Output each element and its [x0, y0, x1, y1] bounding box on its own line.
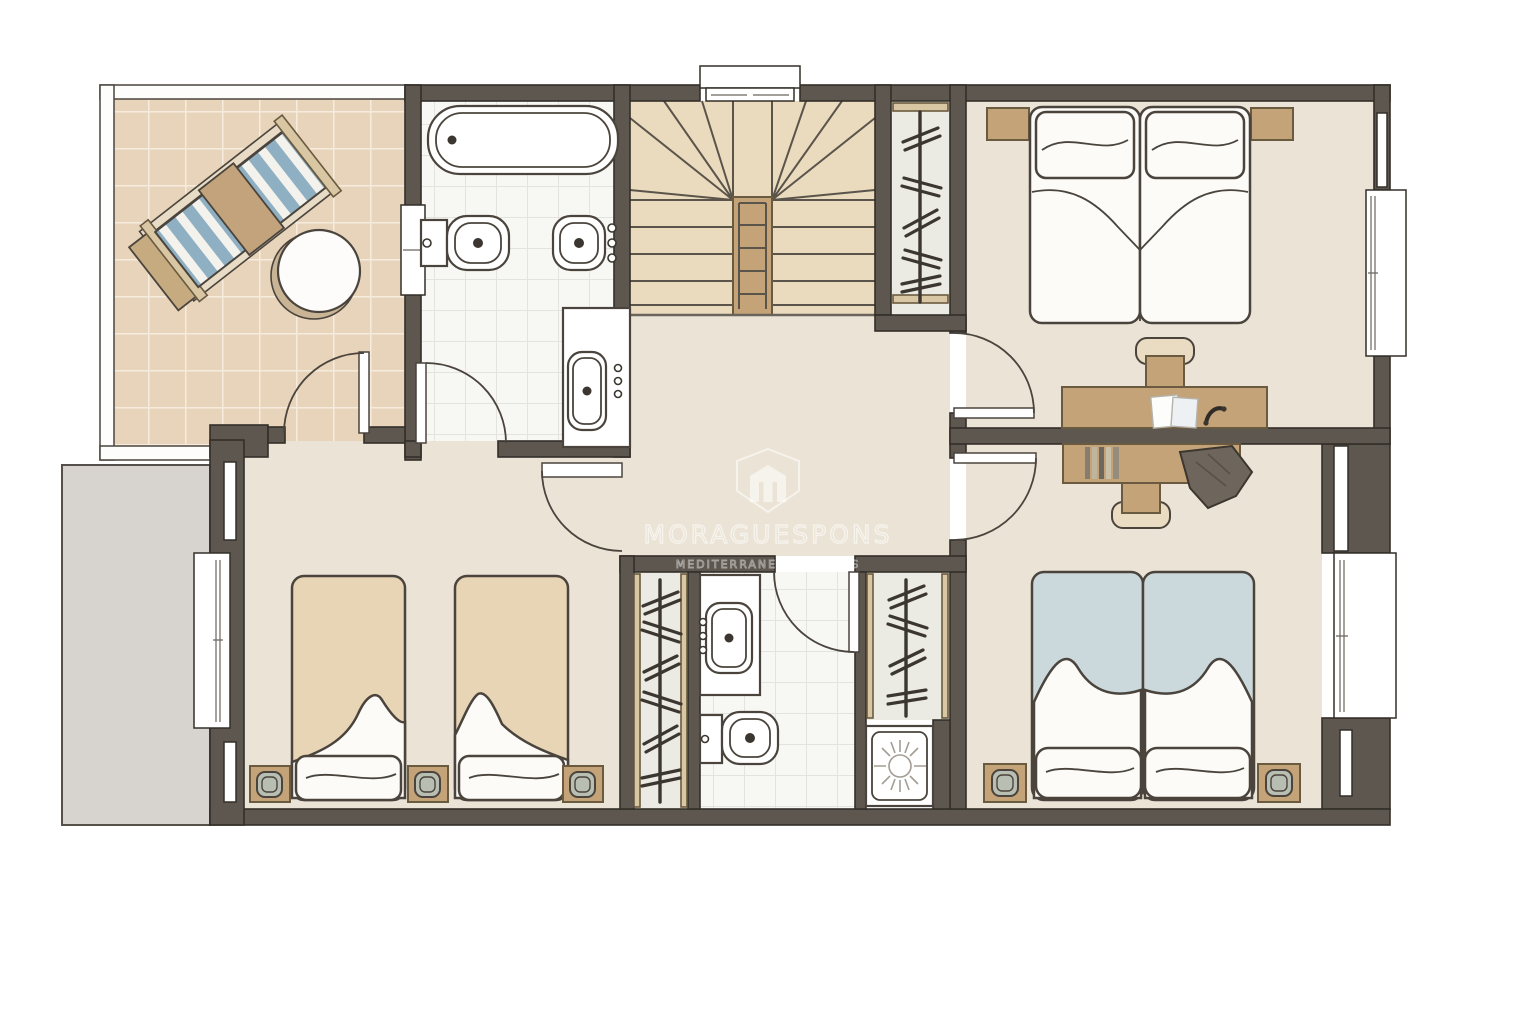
- bedroom-bottom-right-window: [1334, 553, 1396, 718]
- papers: [1171, 397, 1198, 428]
- watermark-tagline: MEDITERRANEAN HOUSES: [676, 558, 861, 571]
- slit-window: [1377, 113, 1387, 187]
- nightstand-with-lamp: [250, 766, 290, 802]
- washbasin-vanity: [563, 308, 630, 447]
- single-bed: [455, 576, 568, 800]
- watermark-brand: MORAGUESPONS: [644, 520, 893, 549]
- slit-window: [224, 742, 236, 802]
- stair-window: [700, 66, 800, 101]
- washbasin-vanity: [700, 575, 761, 695]
- toilet: [700, 712, 778, 764]
- bathtub: [428, 106, 618, 174]
- nightstand: [987, 108, 1029, 140]
- nightstand-with-lamp: [1258, 764, 1300, 802]
- exterior-roof-area: [62, 465, 210, 825]
- bedroom-twin-window: [194, 553, 230, 728]
- single-bed: [292, 576, 405, 800]
- bedroom-top-right-window: [1366, 190, 1406, 356]
- nightstand-with-lamp: [408, 766, 448, 802]
- floor-plan-page: MORAGUESPONS MEDITERRANEAN HOUSES: [0, 0, 1536, 1024]
- nightstand-with-lamp: [563, 766, 603, 802]
- slit-window: [1334, 446, 1348, 551]
- pillow: [1036, 748, 1141, 798]
- slit-window: [224, 462, 236, 540]
- double-bed: [1030, 107, 1250, 323]
- shower: [866, 726, 933, 806]
- toilet: [421, 216, 509, 270]
- pillow: [1145, 748, 1250, 798]
- slit-window: [1340, 730, 1352, 796]
- floor-plan-canvas: MORAGUESPONS MEDITERRANEAN HOUSES: [0, 0, 1536, 1024]
- nightstand-with-lamp: [984, 764, 1026, 802]
- desk: [1062, 387, 1267, 428]
- double-bed: [1032, 572, 1254, 800]
- nightstand: [1251, 108, 1293, 140]
- wardrobe-right-floor: [866, 572, 950, 720]
